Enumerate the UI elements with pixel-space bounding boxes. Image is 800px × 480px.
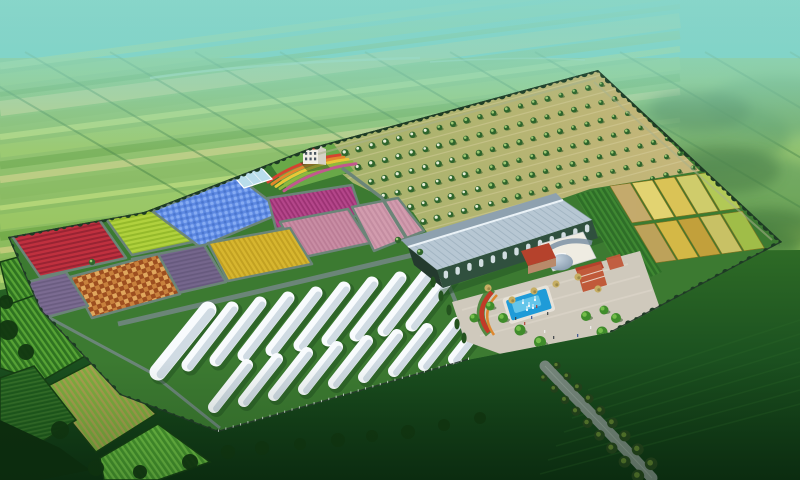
arch-window — [455, 267, 459, 275]
khaki-shrub-core — [555, 283, 558, 286]
haze-layer-top — [0, 0, 800, 110]
arch-window — [444, 271, 448, 279]
person — [524, 322, 525, 325]
arch-window — [479, 259, 483, 267]
fountain-splash — [532, 307, 534, 309]
office-window — [305, 158, 307, 161]
khaki-shrub-core — [511, 299, 514, 302]
bottom-vignette — [0, 360, 800, 480]
grove-tree — [395, 237, 401, 243]
cypress-tree — [461, 333, 466, 344]
arch-window — [514, 248, 518, 256]
office-side — [318, 146, 326, 165]
office-window — [310, 158, 312, 161]
fountain-splash — [534, 299, 536, 301]
grove-tree-highlight — [90, 260, 93, 263]
arch-window — [467, 263, 471, 271]
khaki-shrub-core — [577, 276, 580, 279]
person — [515, 317, 516, 320]
fountain-splash — [526, 309, 528, 311]
person — [531, 316, 532, 319]
person — [536, 305, 537, 308]
fountain-splash — [522, 302, 524, 304]
foreground-tree-cluster — [18, 344, 34, 360]
aerial-rendering — [0, 0, 800, 480]
arch-window — [503, 251, 507, 259]
cypress-tree — [438, 291, 443, 302]
person — [577, 334, 578, 337]
khaki-shrub-core — [533, 290, 536, 293]
person — [553, 336, 554, 339]
arch-window — [491, 255, 495, 263]
cypress-tree — [446, 305, 451, 316]
rendering-canvas — [0, 0, 800, 480]
fountain-splash — [528, 305, 530, 307]
khaki-shrub-core — [597, 288, 600, 291]
cypress-tree — [454, 319, 459, 330]
grove-tree-highlight — [418, 250, 421, 253]
arch-window — [585, 224, 589, 232]
office-window — [310, 152, 312, 155]
office-window — [314, 152, 316, 155]
office-window — [314, 158, 316, 161]
grove-tree — [89, 259, 95, 265]
person — [590, 326, 591, 329]
grove-tree — [417, 249, 423, 255]
cypress-tree — [430, 277, 435, 288]
person — [547, 312, 548, 315]
khaki-shrub-core — [487, 287, 490, 290]
person — [544, 330, 545, 333]
grove-tree-highlight — [396, 238, 399, 241]
